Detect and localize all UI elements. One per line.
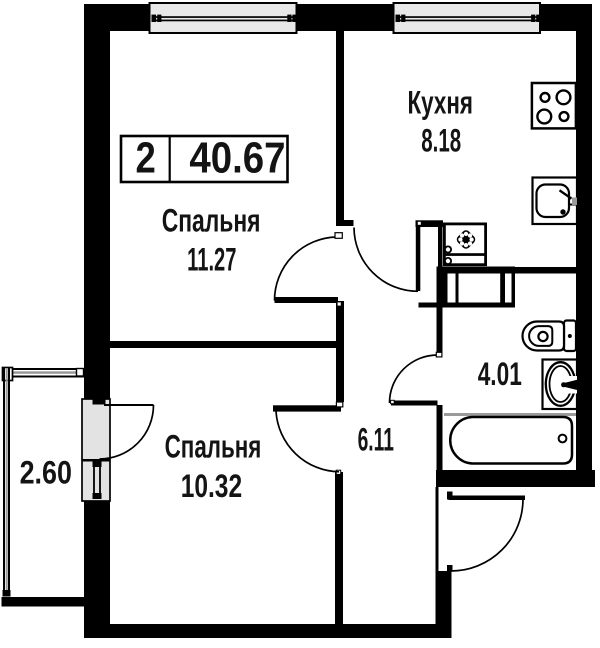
svg-text:11.27: 11.27 <box>187 242 236 278</box>
svg-text:Спальня: Спальня <box>162 203 261 239</box>
svg-text:4.01: 4.01 <box>478 356 522 392</box>
svg-text:10.32: 10.32 <box>181 469 242 505</box>
svg-text:Кухня: Кухня <box>407 85 472 121</box>
svg-text:6.11: 6.11 <box>358 422 394 458</box>
svg-text:Спальня: Спальня <box>165 429 262 465</box>
svg-text:8.18: 8.18 <box>421 123 461 159</box>
svg-text:40.67: 40.67 <box>189 133 285 182</box>
svg-text:2: 2 <box>135 132 155 182</box>
svg-text:2.60: 2.60 <box>20 456 72 492</box>
